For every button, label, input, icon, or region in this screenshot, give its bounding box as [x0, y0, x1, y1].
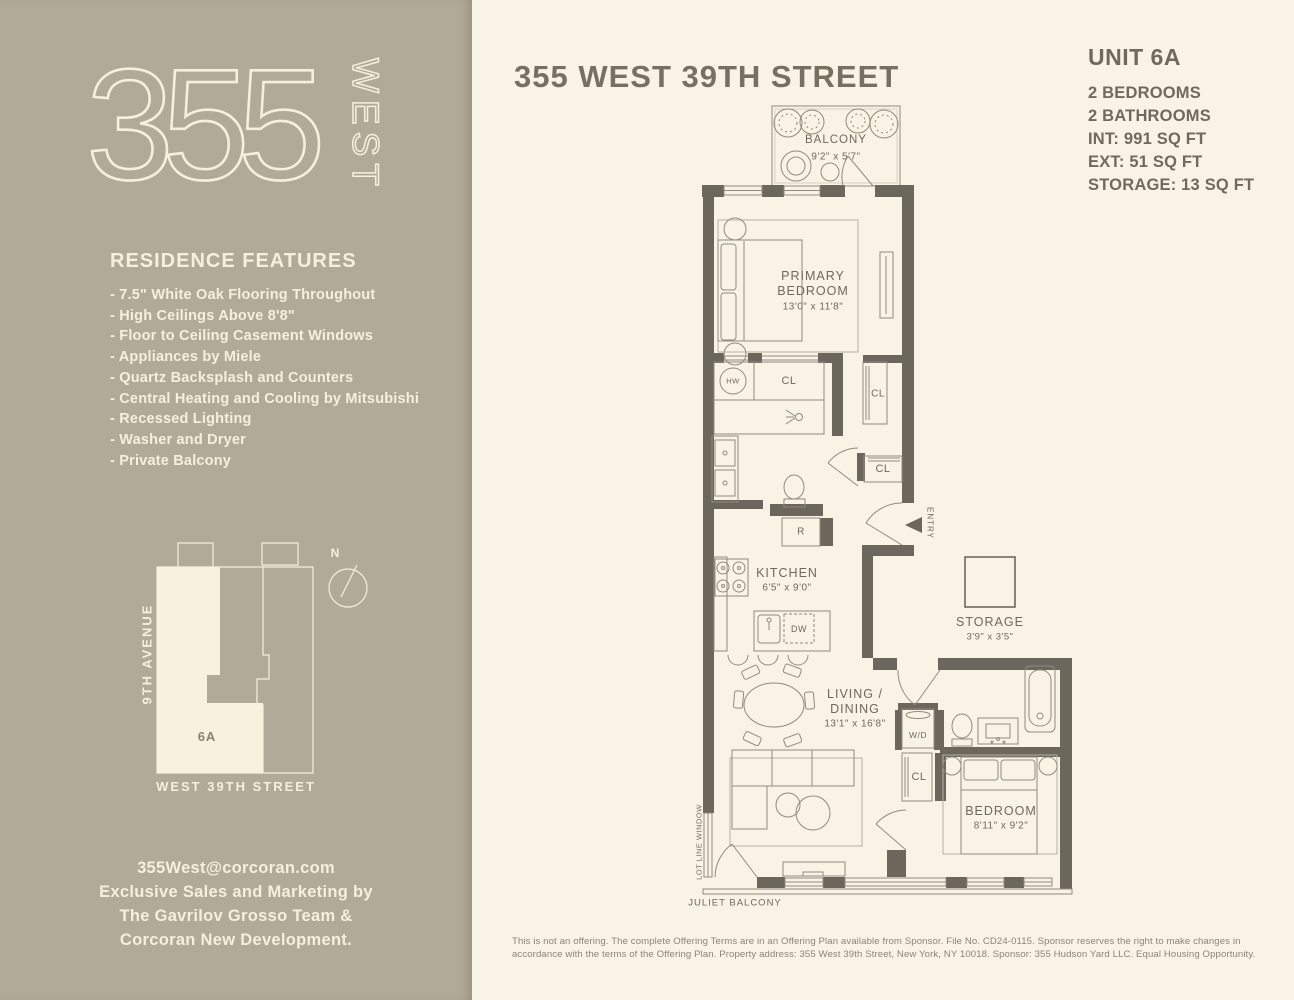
- stool: [758, 655, 778, 665]
- contact-line: Exclusive Sales and Marketing by: [0, 880, 472, 904]
- living-dining-label: LIVING /: [827, 687, 883, 701]
- toilet: [784, 475, 804, 499]
- residence-features: RESIDENCE FEATURES 7.5" White Oak Floori…: [110, 250, 450, 471]
- features-heading: RESIDENCE FEATURES: [110, 250, 450, 273]
- unit-spec: 2 BEDROOMS: [1088, 82, 1254, 105]
- dining-furniture: [733, 664, 814, 748]
- primary-bedroom-dims: 13'0" x 11'8": [783, 302, 844, 313]
- feature-item: Floor to Ceiling Casement Windows: [110, 326, 450, 347]
- vanity: [712, 436, 738, 502]
- closet-label: CL: [781, 375, 796, 387]
- feature-item: Quartz Backsplash and Counters: [110, 368, 450, 389]
- feature-item: 7.5" White Oak Flooring Throughout: [110, 285, 450, 306]
- refrigerator-label: R: [797, 527, 805, 538]
- unit-name: UNIT 6A: [1088, 44, 1254, 71]
- site-key-plan: 9TH AVENUE WEST 39TH STREET 6A N: [135, 535, 385, 805]
- disclaimer: This is not an offering. The complete Of…: [512, 936, 1272, 961]
- logo-number: 355: [86, 46, 314, 204]
- floor-plan: BALCONY 9'2" x 5'7" PRIMARY BEDROOM 13'0…: [690, 98, 1080, 913]
- balcony-table: [821, 163, 839, 181]
- logo-word: WEST: [344, 58, 386, 204]
- contact-line: Corcoran New Development.: [0, 928, 472, 952]
- washer-dryer-label: W/D: [909, 730, 927, 740]
- unit-spec: STORAGE: 13 SQ FT: [1088, 174, 1254, 197]
- building-notch: [178, 543, 213, 567]
- juliet-balcony-rail: [703, 889, 1072, 894]
- primary-bedroom-label: PRIMARY: [781, 269, 845, 283]
- primary-bath-fixtures: [712, 356, 902, 507]
- storage-box: [965, 557, 1015, 607]
- disclaimer-line: accordance with the terms of the Offerin…: [512, 949, 1272, 962]
- storage-label: STORAGE: [956, 615, 1024, 629]
- balcony-dims: 9'2" x 5'7": [811, 152, 860, 163]
- balcony-label: BALCONY: [805, 134, 867, 146]
- feature-item: High Ceilings Above 8'8": [110, 306, 450, 327]
- kitchen-dims: 6'5" x 9'0": [762, 583, 811, 594]
- feature-item: Washer and Dryer: [110, 430, 450, 451]
- living-dining-dims: 13'1" x 16'8": [824, 719, 885, 730]
- juliet-balcony-label: JULIET BALCONY: [688, 898, 782, 909]
- floor-plan-drawing: [690, 98, 1080, 913]
- shower: [714, 400, 824, 434]
- sidebar: 355 WEST RESIDENCE FEATURES 7.5" White O…: [0, 0, 472, 1000]
- contact-line: The Gavrilov Grosso Team &: [0, 904, 472, 928]
- street-label: WEST 39TH STREET: [153, 779, 319, 794]
- feature-item: Private Balcony: [110, 451, 450, 472]
- stool: [728, 655, 748, 665]
- closet-label: CL: [871, 389, 885, 400]
- feature-item: Recessed Lighting: [110, 409, 450, 430]
- coffee-table: [796, 796, 830, 830]
- avenue-label: 9TH AVENUE: [140, 605, 155, 705]
- sofa: [732, 750, 854, 786]
- unit-spec: INT: 991 SQ FT: [1088, 128, 1254, 151]
- bedroom2-dims: 8'11" x 9'2": [974, 821, 1029, 832]
- closet-label: CL: [911, 771, 926, 783]
- bedroom2-label: BEDROOM: [965, 804, 1037, 818]
- windows: [703, 186, 1072, 894]
- compass-circle: [329, 569, 367, 607]
- building-logo: 355 WEST: [86, 52, 388, 204]
- disclaimer-line: This is not an offering. The complete Of…: [512, 936, 1272, 949]
- contact-email: 355West@corcoran.com: [0, 856, 472, 880]
- entry-label: ENTRY: [926, 507, 935, 539]
- media-console: [783, 862, 845, 876]
- north-label: N: [327, 546, 343, 560]
- closet-label: CL: [875, 463, 890, 475]
- brochure-page: 355 WEST RESIDENCE FEATURES 7.5" White O…: [0, 0, 1294, 1000]
- unit-spec: EXT: 51 SQ FT: [1088, 151, 1254, 174]
- dining-table: [744, 683, 804, 727]
- unit-spec: 2 BATHROOMS: [1088, 105, 1254, 128]
- walls: [702, 185, 1072, 889]
- contact-block: 355West@corcoran.com Exclusive Sales and…: [0, 856, 472, 952]
- lot-line-window-label: LOT LINE WINDOW: [695, 804, 704, 880]
- washer-dryer: [902, 709, 934, 748]
- toilet-2: [952, 714, 972, 738]
- kitchen-label: KITCHEN: [756, 566, 818, 580]
- building-notch: [262, 543, 298, 565]
- living-furniture: [730, 750, 862, 876]
- living-dining-label: DINING: [830, 702, 880, 716]
- page-title: 355 WEST 39TH STREET: [514, 59, 899, 95]
- feature-item: Appliances by Miele: [110, 347, 450, 368]
- primary-bedroom-label: BEDROOM: [777, 284, 849, 298]
- storage-dims: 3'9" x 3'5": [966, 632, 1013, 643]
- key-plan-drawing: [135, 535, 385, 805]
- dishwasher-label: DW: [791, 624, 807, 634]
- feature-item: Central Heating and Cooling by Mitsubish…: [110, 389, 450, 410]
- hw-label: HW: [726, 377, 740, 386]
- features-list: 7.5" White Oak Flooring Throughout High …: [110, 285, 450, 471]
- keyplan-unit-label: 6A: [187, 729, 227, 744]
- unit-info: UNIT 6A 2 BEDROOMS 2 BATHROOMS INT: 991 …: [1088, 44, 1254, 197]
- entry-arrow: [905, 517, 922, 533]
- stool: [788, 655, 808, 665]
